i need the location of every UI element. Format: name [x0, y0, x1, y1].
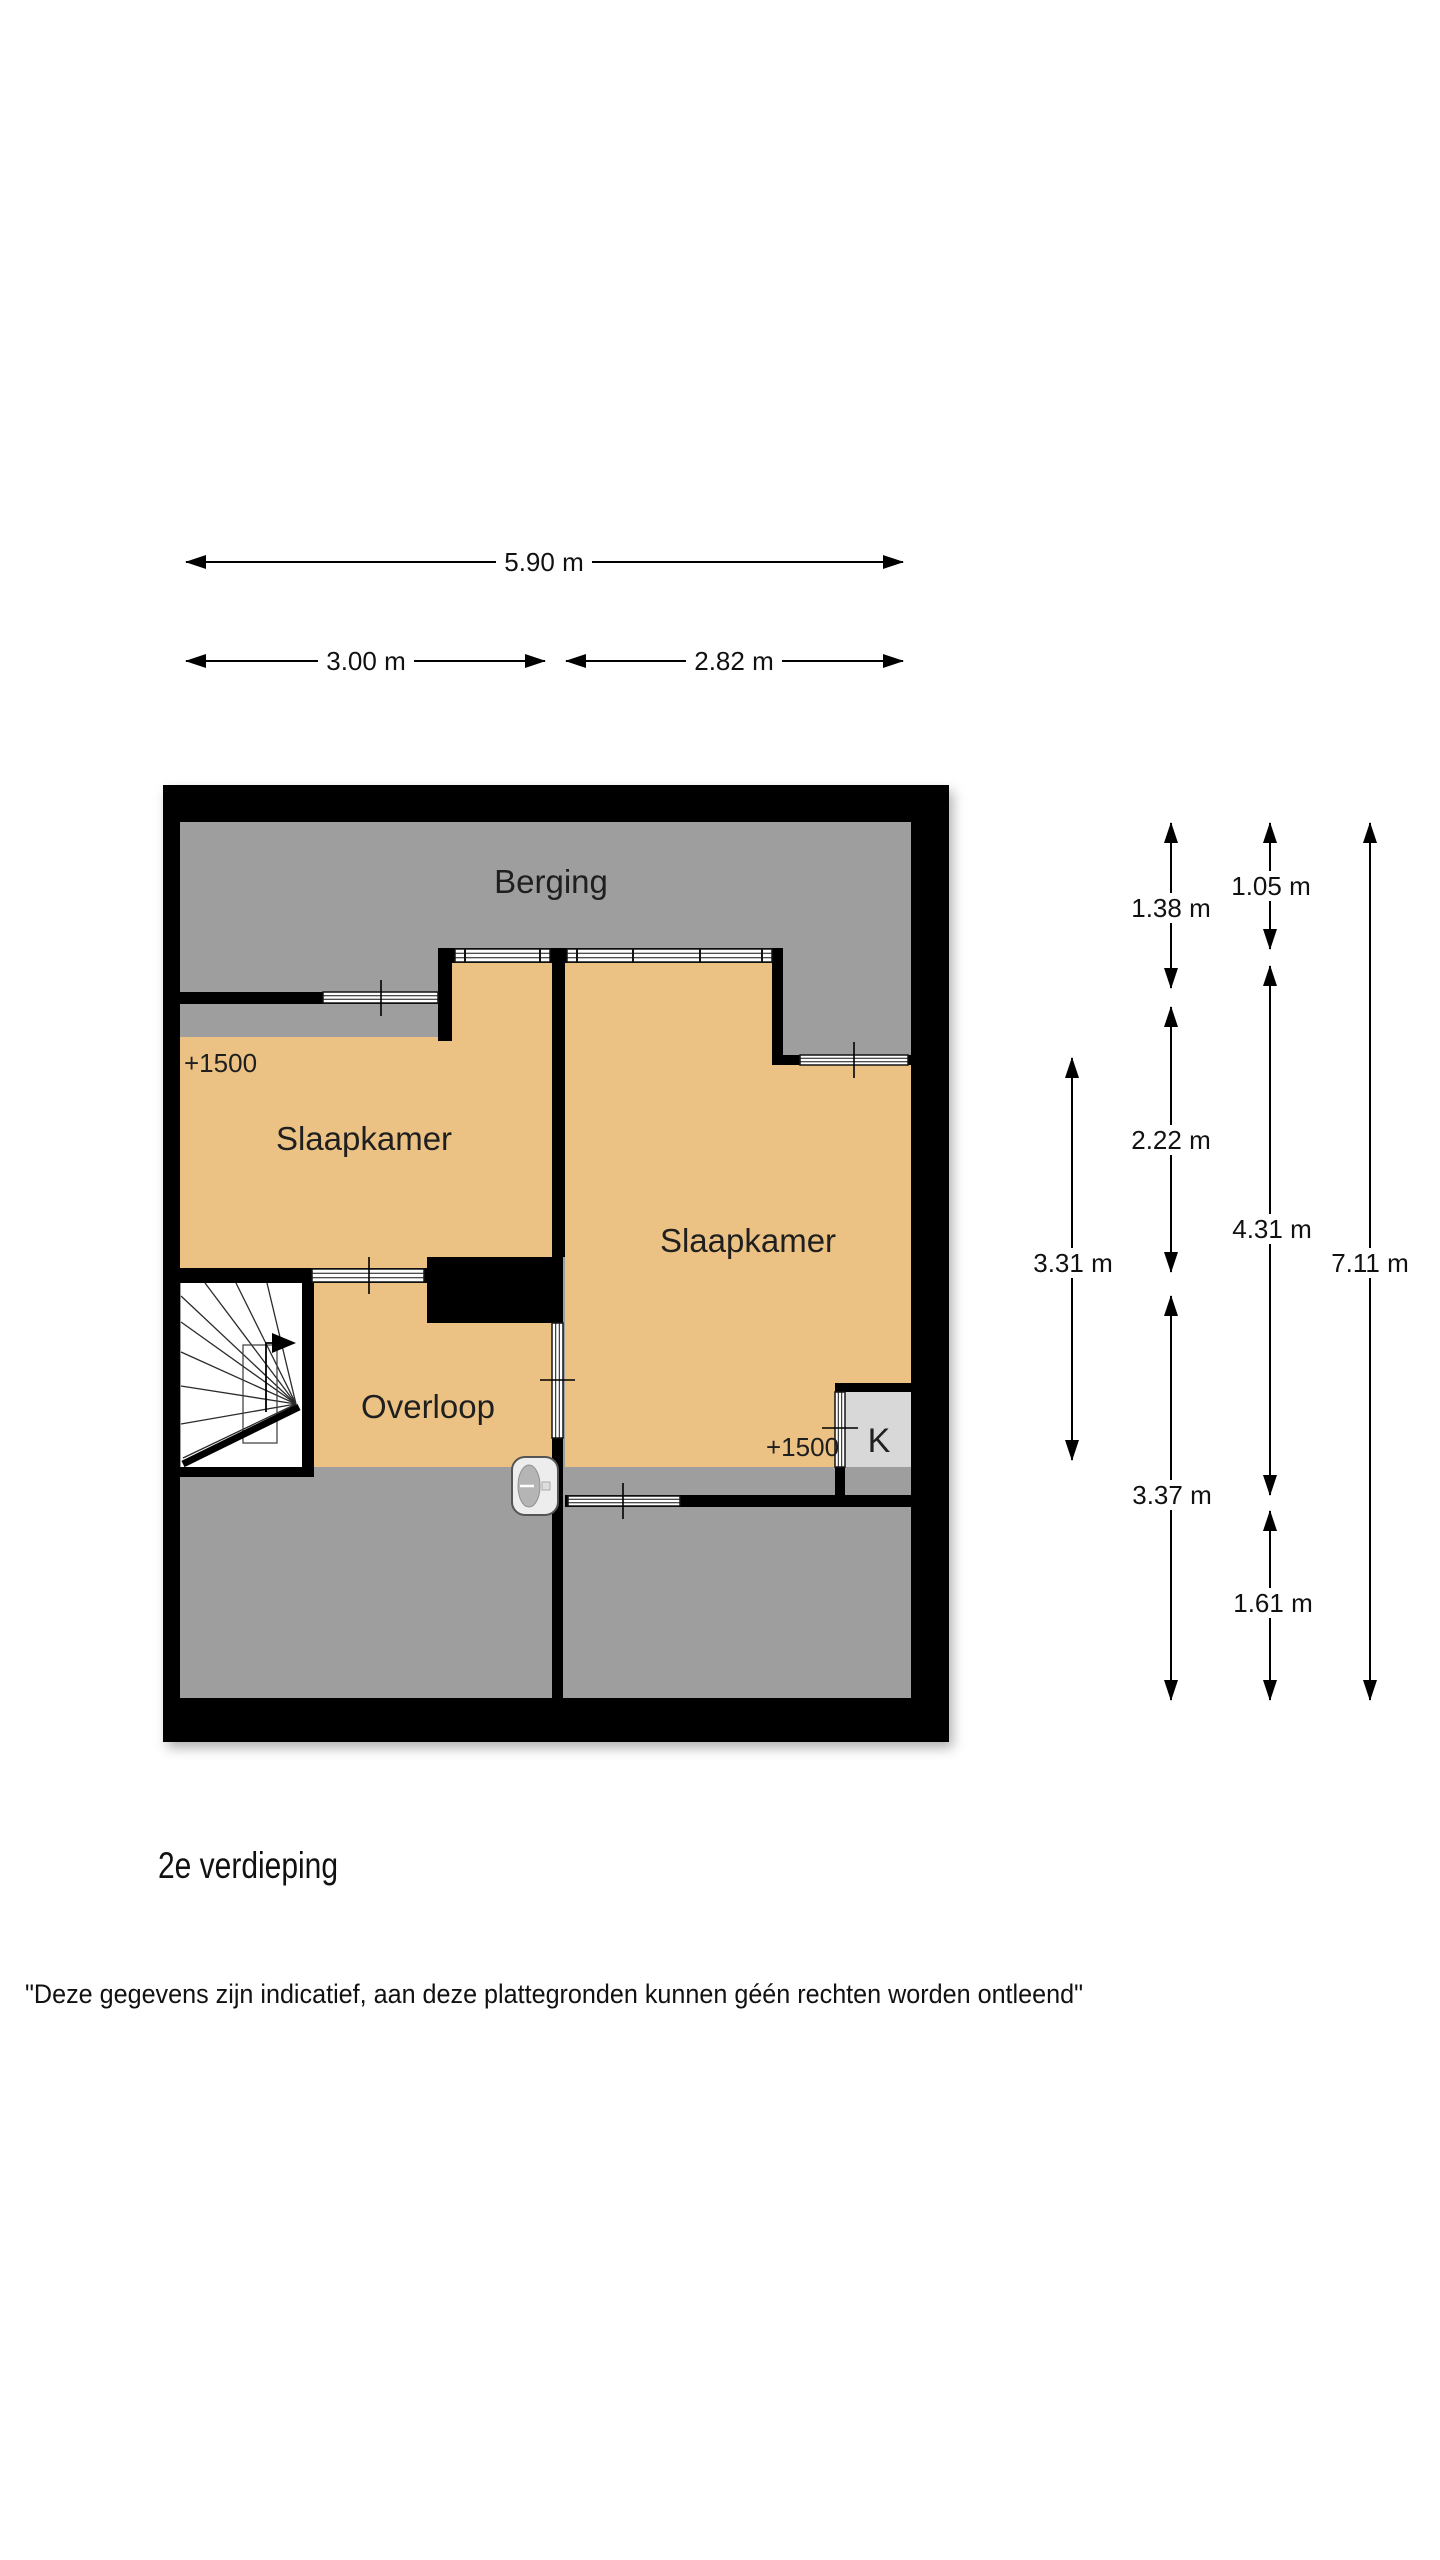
floor-title: 2e verdieping: [158, 1845, 338, 1886]
svg-text:2.82 m: 2.82 m: [694, 646, 774, 676]
window-symbol-neck-top: [455, 949, 550, 962]
dimension-total-width: 5.90 m: [186, 547, 903, 577]
room-label-overloop: Overloop: [361, 1388, 495, 1425]
floorplan-page: Berging Slaapkamer Slaapkamer Overloop K…: [0, 0, 1440, 2560]
dimension-b2: 4.31 m: [1224, 966, 1320, 1495]
door-symbol: [512, 1457, 558, 1515]
dimension-outer-height: 7.11 m: [1322, 823, 1418, 1700]
duct-block: [427, 1257, 563, 1323]
height-marker-left: +1500: [184, 1048, 257, 1078]
room-label-closet-k: K: [868, 1422, 891, 1460]
floorplan-svg: Berging Slaapkamer Slaapkamer Overloop K…: [0, 0, 1440, 2560]
dimension-a1: 1.38 m: [1123, 823, 1219, 988]
svg-text:7.11 m: 7.11 m: [1331, 1248, 1409, 1278]
dimension-inner-height: 3.31 m: [1024, 1058, 1122, 1460]
room-label-slaapkamer-right: Slaapkamer: [660, 1222, 836, 1259]
svg-text:4.31 m: 4.31 m: [1232, 1214, 1312, 1244]
svg-text:3.00 m: 3.00 m: [326, 646, 406, 676]
dimension-b1: 1.05 m: [1223, 823, 1319, 949]
dimension-b3: 1.61 m: [1225, 1511, 1321, 1700]
svg-text:3.31 m: 3.31 m: [1033, 1248, 1113, 1278]
svg-text:3.37 m: 3.37 m: [1132, 1480, 1212, 1510]
height-marker-right: +1500: [766, 1432, 839, 1462]
dimension-width-left: 3.00 m: [186, 646, 545, 676]
svg-text:1.61 m: 1.61 m: [1233, 1588, 1313, 1618]
room-label-berging: Berging: [494, 863, 608, 900]
floorplan: Berging Slaapkamer Slaapkamer Overloop K…: [163, 785, 949, 1742]
window-symbol-bedroom-right-top: [567, 949, 772, 962]
svg-text:5.90 m: 5.90 m: [504, 547, 584, 577]
svg-text:1.05 m: 1.05 m: [1231, 871, 1311, 901]
dimension-width-right: 2.82 m: [566, 646, 903, 676]
disclaimer-text: "Deze gegevens zijn indicatief, aan deze…: [25, 1979, 1083, 2009]
room-label-slaapkamer-left: Slaapkamer: [276, 1120, 452, 1157]
svg-text:2.22 m: 2.22 m: [1131, 1125, 1211, 1155]
dimension-a3: 3.37 m: [1124, 1296, 1220, 1700]
stairs: [181, 1283, 302, 1467]
svg-text:1.38 m: 1.38 m: [1131, 893, 1211, 923]
dimension-a2: 2.22 m: [1123, 1007, 1219, 1272]
